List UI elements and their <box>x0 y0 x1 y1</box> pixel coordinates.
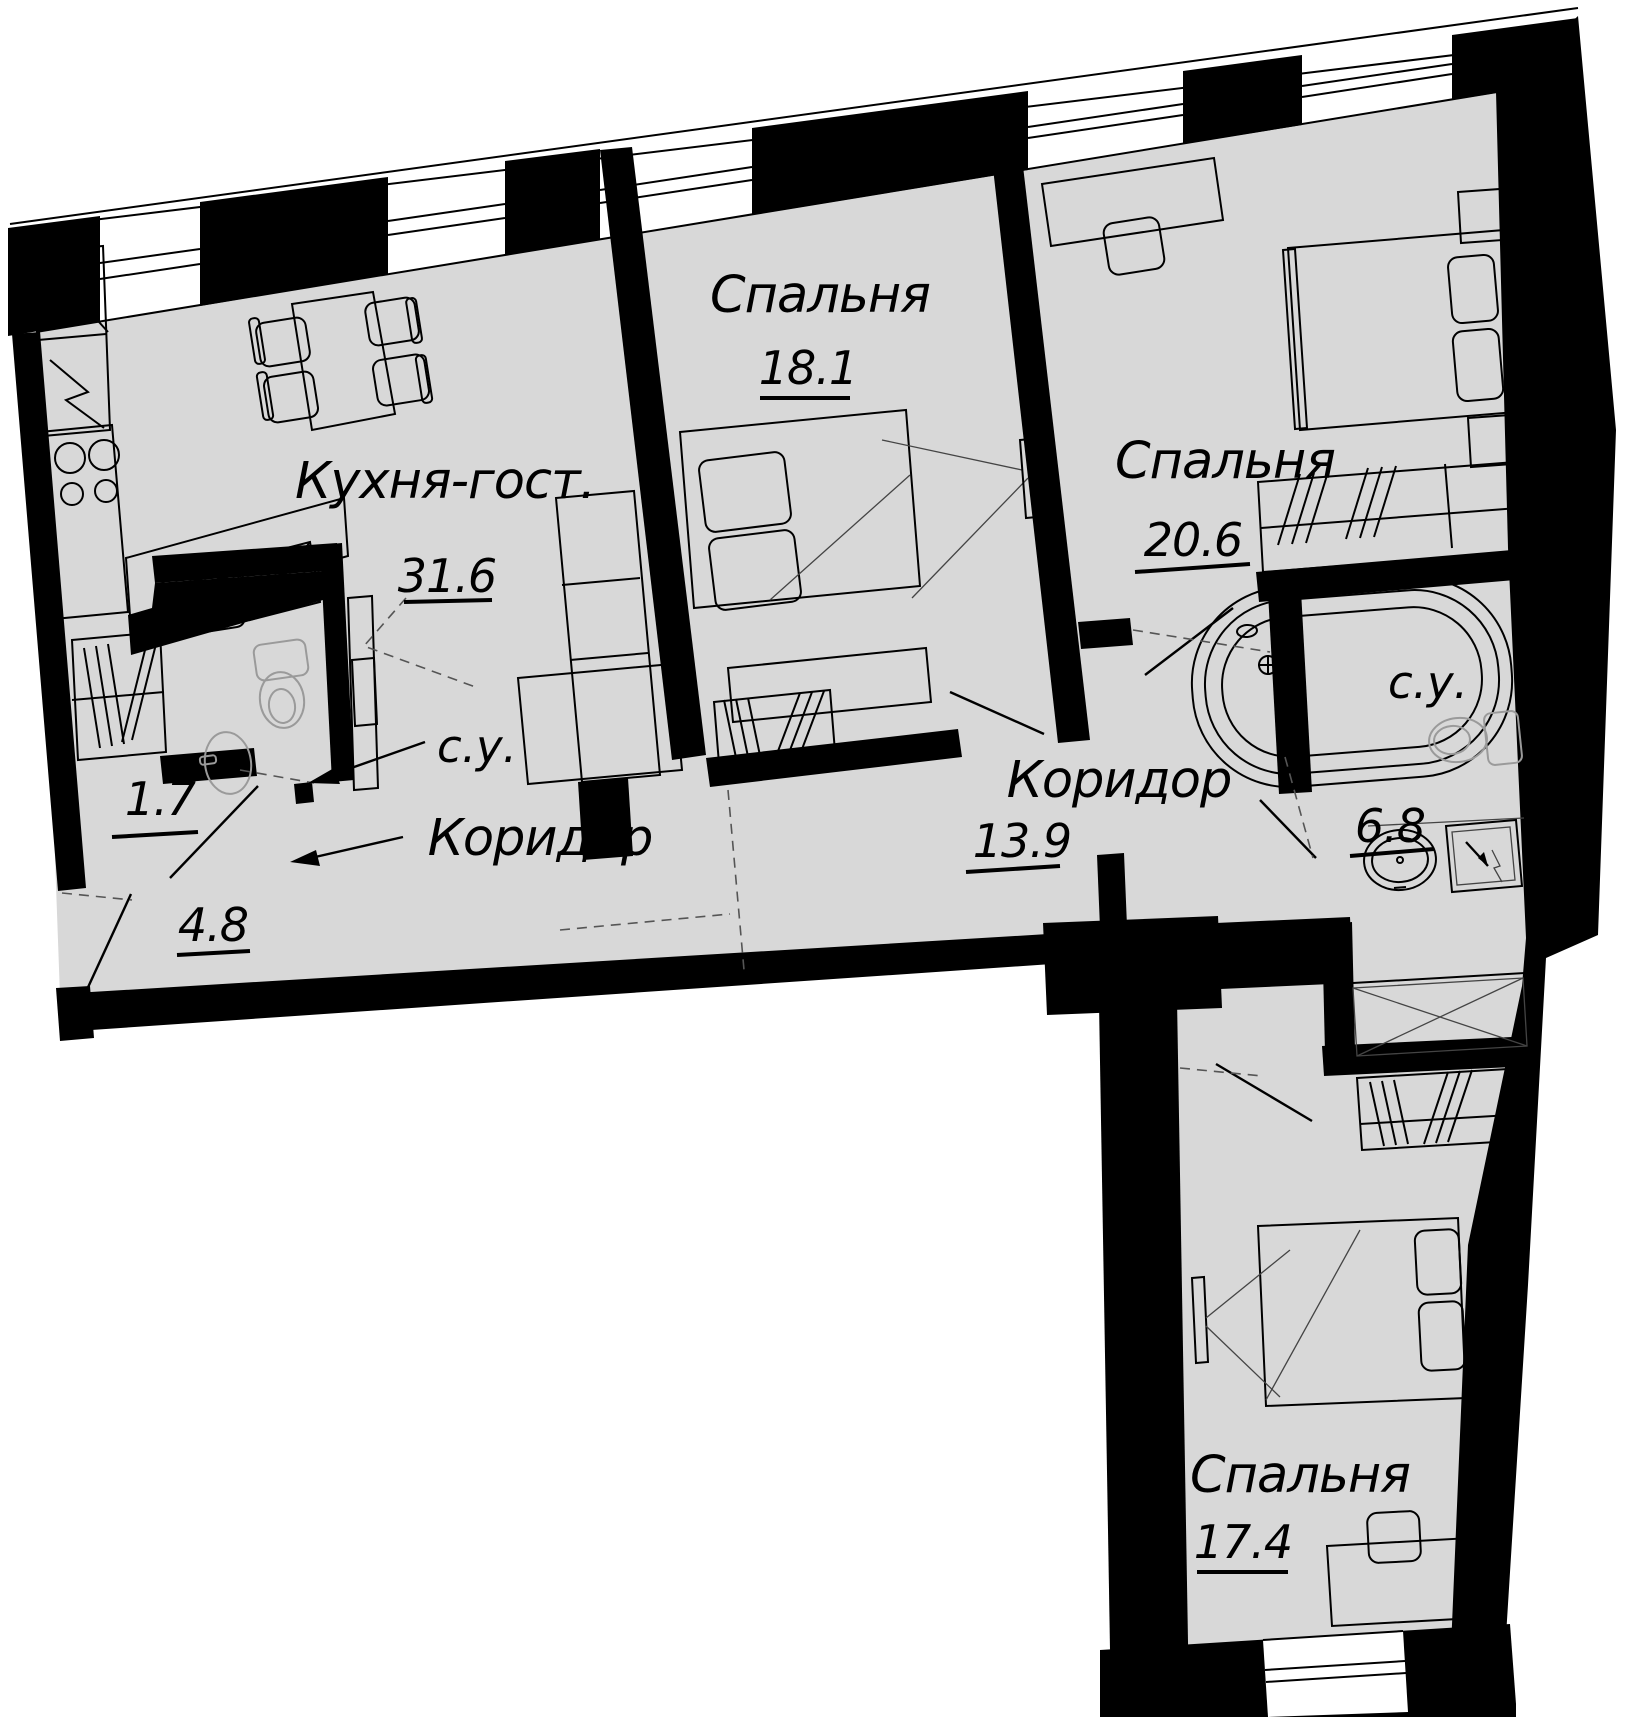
room-area-bedroom1: 18.1 <box>759 341 857 395</box>
room-area-storage: 1.7 <box>125 772 196 826</box>
room-area-bedroom3: 17.4 <box>1194 1515 1292 1569</box>
room-label-wc: с.у. <box>437 720 517 773</box>
room-label-corridor-entry: Коридор <box>428 809 653 868</box>
floor-plan: Кухня-гост. 31.6 Спальня 18.1 Спальня 20… <box>0 0 1631 1717</box>
room-label-bedroom2: Спальня <box>1115 432 1335 491</box>
room-area-corridor-main: 13.9 <box>973 814 1071 868</box>
room-label-bedroom1: Спальня <box>710 266 930 325</box>
room-label-corridor-main: Коридор <box>1007 751 1232 810</box>
room-area-kitchen-living: 31.6 <box>398 549 496 603</box>
room-area-bedroom2: 20.6 <box>1144 513 1242 567</box>
room-area-bathroom: 6.8 <box>1355 799 1425 853</box>
room-label-bathroom: с.у. <box>1388 656 1468 709</box>
room-area-corridor-entry: 4.8 <box>178 898 248 952</box>
floor-plan-page: Кухня-гост. 31.6 Спальня 18.1 Спальня 20… <box>0 0 1631 1717</box>
room-label-bedroom3: Спальня <box>1190 1446 1410 1505</box>
room-label-kitchen-living: Кухня-гост. <box>295 452 595 511</box>
